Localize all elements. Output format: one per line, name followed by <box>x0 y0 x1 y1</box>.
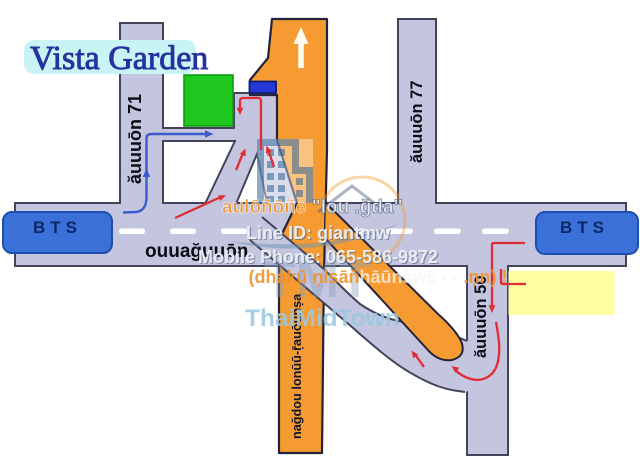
svg-text:Mobile Phone: 065-586-9872: Mobile Phone: 065-586-9872 <box>198 247 438 267</box>
svg-text:ăuuuōn 77: ăuuuōn 77 <box>408 80 426 163</box>
svg-text:ăuuuōn 50: ăuuuōn 50 <box>472 275 490 358</box>
svg-text:(dhakū ņlsāňhāūnšwē - - .ņn) !: (dhakū ņlsāňhāūnšwē - - .ņn) ! <box>248 267 507 287</box>
svg-text:ăuuuōn 71: ăuuuōn 71 <box>125 94 145 184</box>
svg-text:BTS: BTS <box>33 218 82 237</box>
svg-text:BTS: BTS <box>560 218 609 237</box>
svg-text:ThaiMidTown: ThaiMidTown <box>245 305 400 332</box>
svg-text:Vista Garden: Vista Garden <box>30 40 208 77</box>
svg-text:Line ID: giantmw: Line ID: giantmw <box>246 223 391 243</box>
svg-text:aulōñōñe "lou .ğda": aulōñōñe "lou .ğda" <box>222 197 403 218</box>
